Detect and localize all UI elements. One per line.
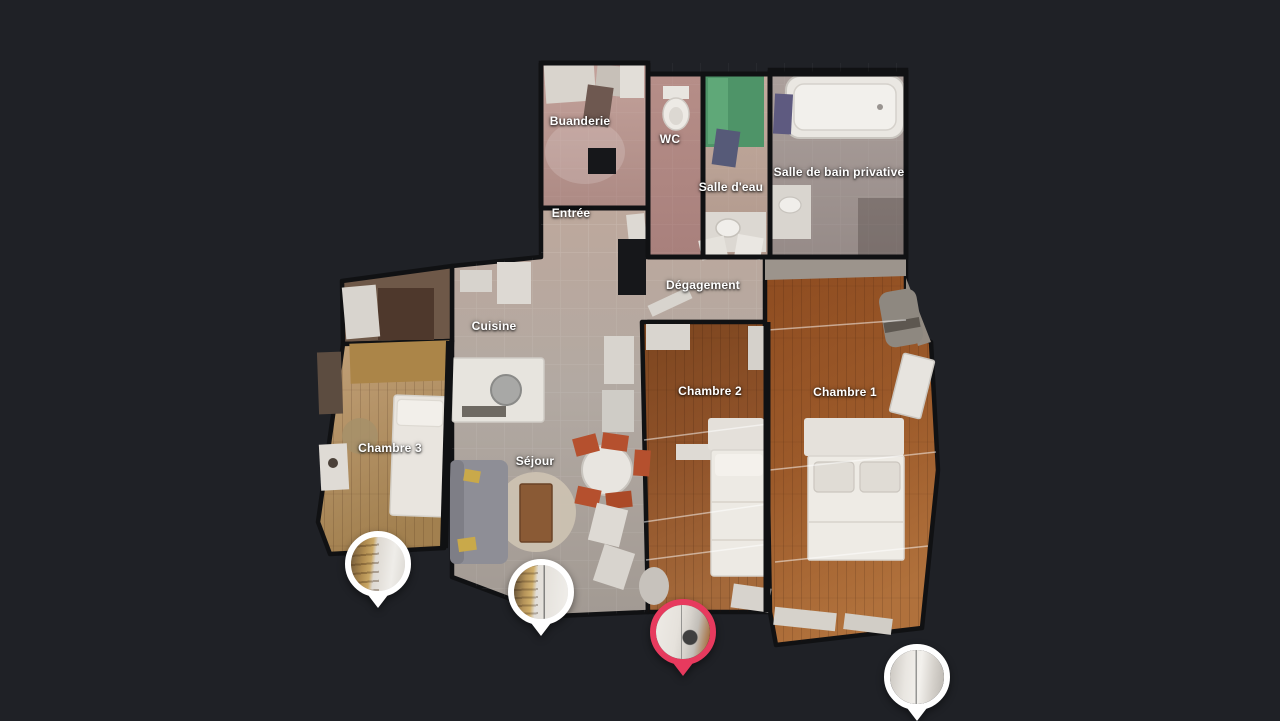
pano-pin-4-ring [884,644,950,710]
bed-chambre-2 [708,418,764,450]
bathtub [786,76,904,138]
pano-pin-4-tail [904,704,930,721]
coffee-table [520,484,552,542]
floorplan-3d-view[interactable]: BuanderieWCSalle d'eauSalle de bain priv… [0,0,1280,720]
pano-pin-3-ring [650,599,716,665]
pano-pin-3-thumbnail [656,605,710,659]
pano-pin-2-tail [528,619,554,636]
pano-pin-3-tail [670,659,696,676]
pano-pin-4[interactable] [882,644,952,721]
pano-pin-1-ring [345,531,411,597]
pano-pin-2-thumbnail [514,565,568,619]
floorplan-svg[interactable] [0,0,1280,720]
pano-pin-1[interactable] [343,531,413,608]
rug [342,418,378,454]
toilet [663,86,689,130]
bed-chambre-1 [804,418,904,456]
pano-pin-2[interactable] [506,559,576,636]
pano-pin-2-ring [508,559,574,625]
pano-pin-1-thumbnail [351,537,405,591]
pano-pin-1-tail [365,591,391,608]
pano-pin-4-thumbnail [890,650,944,704]
pano-pin-3-active[interactable] [648,599,718,676]
kitchen-sink [491,375,521,405]
